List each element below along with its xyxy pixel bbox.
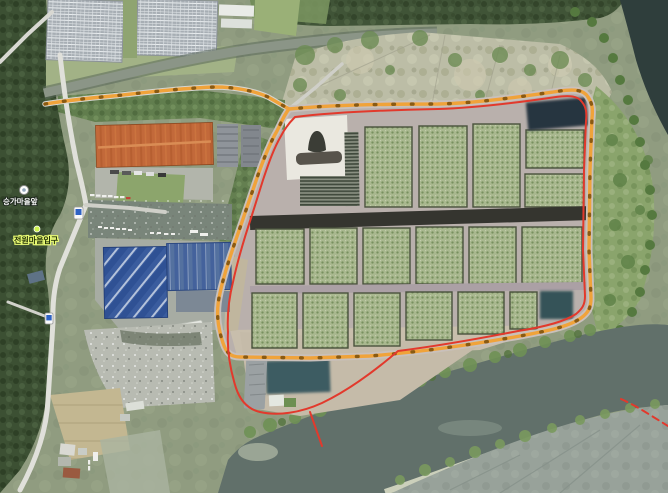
river-shoal: [438, 420, 502, 436]
small-green-shed: [284, 398, 296, 407]
road-sign-glyph: [76, 209, 82, 215]
orchard-plot: [256, 229, 304, 284]
small-white-shed: [269, 395, 285, 407]
privacy-blur-building-south: [265, 359, 330, 394]
orchard-row-1: [365, 124, 584, 207]
sandbar: [238, 443, 278, 461]
orchard-plot: [354, 293, 400, 346]
village-marker-icon[interactable]: [34, 226, 40, 232]
road-sign-glyph: [46, 315, 51, 320]
privacy-blur-building-ne: [526, 97, 588, 130]
site-main-road: [250, 213, 592, 223]
orchard-plot: [363, 228, 410, 284]
orchard-plot: [310, 228, 357, 284]
village-label[interactable]: 전원마을입구: [14, 235, 59, 245]
privacy-blur-building-se: [540, 291, 573, 319]
satellite-map[interactable]: 승가마을앞 전원마을입구: [0, 0, 668, 493]
orchard-plot: [469, 227, 516, 284]
greenhouse-a: [46, 0, 124, 62]
road-sign-marker-1[interactable]: [74, 207, 83, 219]
orchard-plot: [303, 293, 348, 348]
orchard-plot: [416, 227, 463, 284]
orchard-plot: [406, 292, 452, 340]
orchard-plot: [510, 292, 537, 329]
map-canvas[interactable]: 승가마을앞 전원마을입구: [0, 0, 668, 493]
orchard-plot: [458, 292, 504, 334]
orchard-plot: [419, 126, 467, 207]
long-dark-building: [296, 151, 343, 165]
orchard-plot: [526, 130, 584, 168]
orchard-plot: [252, 293, 297, 348]
gray-building-1: [217, 124, 238, 167]
site-cross-road: [250, 286, 586, 290]
orchard-plot: [522, 227, 582, 284]
field-bottom-left-2: [100, 430, 170, 493]
field-ne-of-greenhouses: [254, 0, 300, 36]
seedbed-rows-2: [300, 176, 357, 206]
greenhouse-b: [136, 0, 217, 57]
orchard-plot: [525, 174, 584, 207]
orchard-plot: [365, 127, 412, 207]
bus-stop-icon-dot: [22, 188, 26, 192]
road-sign-marker-2[interactable]: [45, 313, 53, 324]
white-sheds-2: [221, 18, 252, 28]
greenhouse-gap-field: [123, 0, 137, 58]
blue-warehouse-main: [103, 246, 167, 318]
orchard-plot: [473, 124, 520, 207]
white-sheds: [219, 4, 254, 16]
bus-stop-label[interactable]: 승가마을앞: [3, 196, 38, 206]
